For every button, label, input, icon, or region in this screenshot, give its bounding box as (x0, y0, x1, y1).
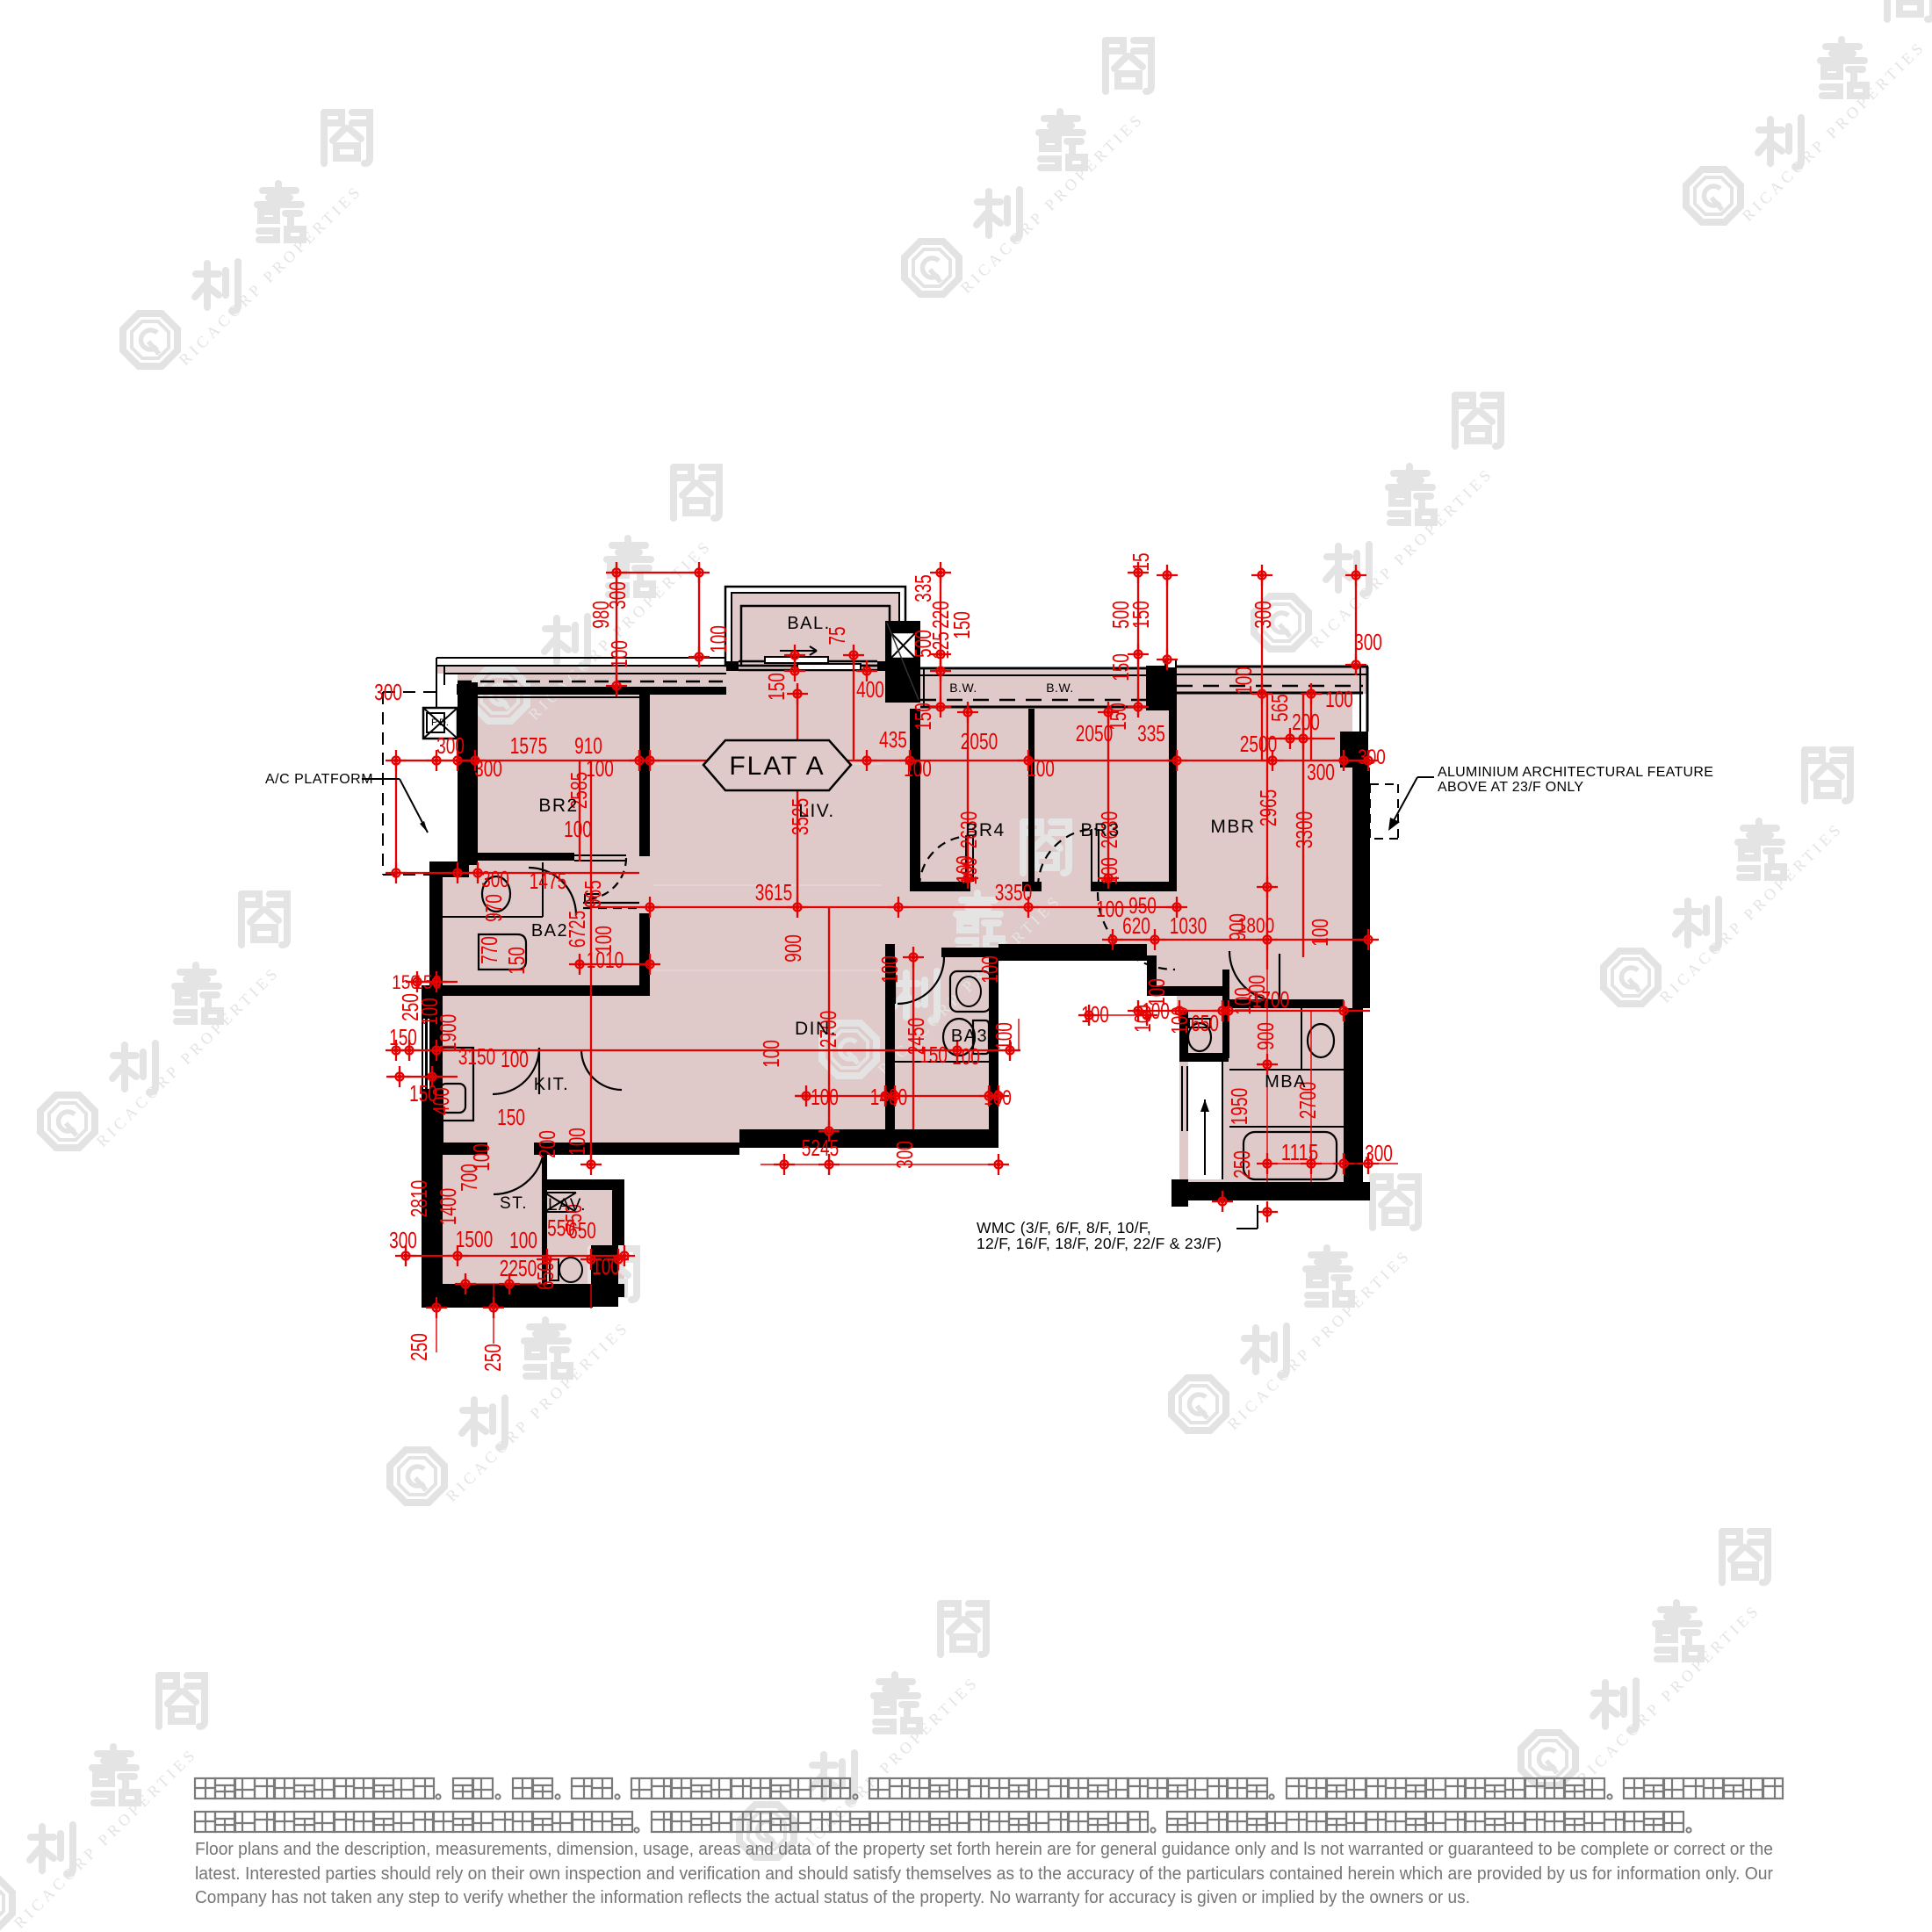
svg-text:3150: 3150 (458, 1043, 495, 1070)
svg-text:100: 100 (1325, 686, 1353, 712)
svg-text:100: 100 (977, 955, 1003, 984)
svg-text:MBA: MBA (1265, 1072, 1307, 1092)
svg-text:ALUMINIUM ARCHITECTURAL FEATUR: ALUMINIUM ARCHITECTURAL FEATURE (1438, 765, 1713, 780)
svg-text:P.D.: P.D. (892, 680, 915, 693)
svg-text:100: 100 (501, 1046, 529, 1072)
svg-text:650: 650 (532, 1262, 559, 1290)
svg-text:100: 100 (1307, 919, 1333, 947)
svg-text:900: 900 (780, 934, 806, 962)
svg-text:500: 500 (910, 630, 936, 658)
svg-text:200: 200 (534, 1130, 560, 1158)
svg-text:P.D.: P.D. (431, 717, 449, 728)
svg-text:100: 100 (1143, 978, 1170, 1006)
svg-text:100: 100 (509, 1227, 537, 1253)
svg-text:300: 300 (389, 1227, 417, 1253)
svg-text:BR3: BR3 (1080, 820, 1120, 840)
svg-text:2965: 2965 (1255, 789, 1281, 826)
svg-text:620: 620 (1122, 912, 1150, 939)
svg-text:BR2: BR2 (538, 796, 578, 816)
svg-text:150: 150 (1105, 703, 1131, 731)
svg-text:300: 300 (1358, 746, 1386, 769)
svg-text:2250: 2250 (500, 1255, 537, 1281)
svg-text:100: 100 (1081, 1001, 1109, 1027)
svg-text:300: 300 (436, 732, 465, 759)
svg-text:2500: 2500 (1240, 731, 1277, 757)
svg-text:ST.: ST. (500, 1194, 528, 1213)
svg-text:DIN.: DIN. (795, 1019, 837, 1039)
svg-text:300: 300 (1354, 629, 1382, 655)
svg-text:1500: 1500 (456, 1226, 493, 1252)
svg-text:650: 650 (1191, 1010, 1219, 1036)
svg-text:565: 565 (1266, 694, 1293, 722)
svg-text:100: 100 (904, 755, 932, 782)
svg-text:300: 300 (374, 679, 402, 705)
svg-text:1480: 1480 (870, 1084, 907, 1110)
svg-text:MBR: MBR (1210, 817, 1255, 837)
svg-text:1950: 1950 (1226, 1088, 1252, 1125)
svg-text:150: 150 (503, 947, 530, 975)
svg-text:BAL.: BAL. (787, 614, 830, 633)
svg-text:100: 100 (876, 955, 903, 984)
svg-text:LAV.: LAV. (548, 1196, 587, 1215)
svg-text:100: 100 (564, 1128, 590, 1156)
svg-text:150: 150 (763, 673, 789, 701)
svg-text:250: 250 (406, 1333, 432, 1361)
svg-text:FLAT A: FLAT A (729, 752, 825, 781)
svg-text:B.W.: B.W. (949, 681, 977, 695)
svg-text:100: 100 (468, 1143, 494, 1171)
svg-text:BA2: BA2 (531, 921, 568, 941)
svg-text:3615: 3615 (755, 879, 792, 905)
svg-text:1115: 1115 (1281, 1139, 1318, 1165)
svg-text:latest. Interested parties sho: latest. Interested parties should rely o… (195, 1864, 1773, 1884)
svg-text:100: 100 (564, 816, 592, 842)
svg-text:300: 300 (604, 581, 631, 609)
svg-text:KIT.: KIT. (534, 1075, 569, 1094)
svg-text:400: 400 (428, 1087, 454, 1115)
svg-text:150: 150 (919, 1042, 948, 1068)
svg-text:100: 100 (1229, 987, 1256, 1015)
svg-text:1475: 1475 (530, 868, 566, 894)
svg-text:3350: 3350 (995, 879, 1032, 905)
svg-text:100: 100 (758, 1040, 784, 1068)
svg-text:150: 150 (910, 703, 936, 731)
svg-text:100: 100 (1230, 667, 1257, 695)
svg-text:200: 200 (1292, 709, 1320, 735)
svg-text:150: 150 (414, 971, 442, 993)
svg-text:150: 150 (948, 611, 975, 639)
svg-text:100: 100 (606, 640, 632, 668)
svg-text:335: 335 (910, 574, 936, 602)
svg-text:335: 335 (1137, 720, 1165, 746)
svg-text:300: 300 (481, 866, 509, 892)
svg-text:300: 300 (1250, 601, 1276, 629)
svg-text:2810: 2810 (406, 1180, 432, 1217)
svg-text:770: 770 (476, 936, 502, 964)
svg-text:100: 100 (984, 1086, 1012, 1110)
svg-text:900: 900 (1252, 1022, 1279, 1050)
svg-text:300: 300 (474, 755, 502, 782)
svg-text:150: 150 (1107, 653, 1134, 681)
svg-text:A/C PLATFORM: A/C PLATFORM (265, 772, 373, 787)
svg-text:250: 250 (479, 1344, 506, 1372)
svg-text:LIV.: LIV. (798, 801, 834, 821)
svg-text:Floor plans and the descriptio: Floor plans and the description, measure… (195, 1840, 1773, 1859)
svg-text:3300: 3300 (1291, 811, 1317, 848)
svg-text:100: 100 (705, 625, 732, 653)
svg-text:150: 150 (1128, 601, 1154, 629)
svg-text:ABOVE AT 23/F ONLY: ABOVE AT 23/F ONLY (1438, 780, 1583, 795)
svg-text:100: 100 (1096, 896, 1124, 922)
svg-text:250: 250 (1229, 1150, 1255, 1179)
svg-text:BR4: BR4 (965, 820, 1005, 840)
svg-text:WMC (3/F, 6/F, 8/F, 10/F,: WMC (3/F, 6/F, 8/F, 10/F, (977, 1219, 1151, 1236)
svg-text:BA3: BA3 (951, 1027, 988, 1046)
svg-text:5245: 5245 (802, 1135, 839, 1161)
svg-text:970: 970 (480, 894, 507, 922)
svg-text:100: 100 (590, 926, 616, 954)
svg-text:12/F, 16/F, 18/F, 20/F, 22/F &: 12/F, 16/F, 18/F, 20/F, 22/F & 23/F) (977, 1235, 1222, 1252)
svg-text:435: 435 (879, 726, 907, 753)
svg-text:Company has not taken any step: Company has not taken any step to verify… (195, 1888, 1470, 1907)
svg-text:100: 100 (991, 1022, 1017, 1050)
svg-text:150: 150 (497, 1104, 525, 1130)
svg-text:100: 100 (1129, 1005, 1156, 1033)
svg-text:1030: 1030 (1170, 912, 1207, 939)
svg-text:900: 900 (1224, 913, 1251, 941)
svg-text:1575: 1575 (510, 732, 547, 759)
svg-text:100: 100 (811, 1084, 839, 1110)
svg-text:100: 100 (951, 855, 977, 883)
svg-text:965: 965 (580, 880, 606, 908)
svg-text:B.W.: B.W. (1046, 681, 1074, 695)
svg-text:400: 400 (856, 676, 884, 703)
svg-text:100: 100 (1027, 755, 1055, 782)
svg-text:250: 250 (397, 993, 423, 1021)
svg-text:300: 300 (1307, 759, 1335, 785)
svg-text:100: 100 (1166, 1006, 1193, 1034)
svg-text:2050: 2050 (961, 728, 998, 754)
svg-text:1400: 1400 (435, 1188, 461, 1225)
svg-text:15: 15 (1128, 552, 1154, 571)
